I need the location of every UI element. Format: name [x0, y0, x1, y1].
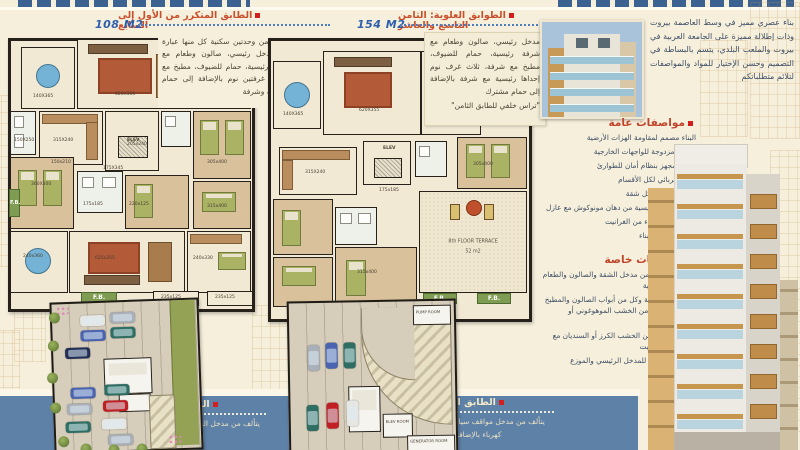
elevator-shaft: [374, 158, 402, 178]
dim-label: 315X240: [53, 137, 73, 142]
terrace: 8th FLOOR TERRACE 52 m2: [419, 191, 527, 293]
parked-car: [101, 418, 126, 430]
tower-side-balcony: [750, 344, 777, 359]
dim-label: 240x330: [193, 255, 213, 260]
parked-car: [346, 400, 358, 426]
dim-label: 175x185: [83, 201, 103, 206]
bath-fixture: [358, 213, 371, 224]
bullet-icon: [509, 13, 514, 18]
dim-label: 220x125: [129, 201, 149, 206]
tree: [108, 444, 119, 450]
dim-label: 620X355: [115, 91, 135, 96]
tower-render: [648, 130, 798, 450]
terrace-area-label: 52 m2: [431, 249, 516, 255]
parked-car: [80, 330, 105, 342]
bathroom: [10, 111, 36, 155]
tower-side-face: [746, 174, 780, 450]
parked-car: [70, 387, 95, 399]
salon-room: [323, 51, 421, 135]
bath-fixture: [14, 116, 24, 128]
parking-plan-basement: PUMP ROOM ELEV ROOM GENERATOR ROOM: [287, 299, 459, 450]
bath-fixture: [102, 177, 116, 188]
parked-car: [307, 345, 319, 371]
dim-label: 305x400: [473, 161, 493, 166]
round-table: [466, 200, 482, 216]
sofa: [84, 275, 140, 285]
bed: [491, 144, 510, 178]
dim-label: 175X345: [103, 165, 123, 170]
tree: [58, 436, 69, 447]
balcony-room: [21, 47, 75, 109]
dim-label: 305x400: [207, 159, 227, 164]
dining-table: [148, 242, 172, 282]
tower-balcony-glass: [677, 389, 743, 399]
tower-balcony-glass: [677, 269, 743, 279]
dim-label: 360X300: [31, 181, 51, 186]
bathroom: [335, 207, 377, 245]
tower-balcony-glass: [677, 209, 743, 219]
bed: [202, 192, 236, 212]
dim-label: 140X365: [33, 93, 53, 98]
photo-balcony: [550, 88, 634, 96]
dotted-rule: [138, 24, 330, 26]
bathroom: [415, 141, 447, 177]
parked-car: [67, 403, 92, 415]
upper-floors-note: "تراس خلفي للطابق الثامن": [430, 100, 540, 112]
rug: [344, 72, 392, 108]
parked-car: [104, 384, 129, 396]
sofa: [334, 57, 392, 67]
dim-label: 235x125: [215, 294, 235, 299]
bedroom: [335, 247, 417, 307]
balcony-room: [273, 61, 321, 129]
tower-right-wing: [780, 280, 798, 450]
elev-label: ELEV: [127, 137, 140, 142]
tower-balcony-glass: [677, 329, 743, 339]
building-photo: [540, 20, 644, 119]
bath-fixture: [82, 177, 94, 188]
dim-label: 150X250: [14, 137, 34, 142]
tree: [80, 443, 91, 450]
brand-band-left: [18, 0, 250, 7]
bath-fixture: [419, 146, 430, 157]
round-table: [284, 82, 310, 108]
photo-window: [576, 38, 588, 48]
stairs: [109, 362, 147, 375]
bathroom: [77, 171, 123, 213]
parked-car: [110, 327, 135, 339]
photo-balcony: [550, 56, 634, 64]
bed: [282, 210, 301, 246]
dim-label: 315x400: [207, 203, 227, 208]
parked-car: [103, 400, 128, 412]
general-specs-title: مواصفات عامة: [608, 117, 685, 129]
upper-floors-description-panel: مدخل رئيسي، صالون وطعام مع شرفة رئيسية، …: [424, 32, 546, 126]
bullet-icon: [499, 400, 504, 405]
tower-front-face: [674, 164, 747, 450]
bedroom: [193, 111, 251, 179]
tower-balcony-glass: [677, 179, 743, 189]
elev-room: ELEV ROOM: [383, 413, 413, 438]
terrace-chair: [450, 204, 460, 220]
tower-balcony-glass: [677, 419, 743, 429]
general-specs-heading-row: مواصفات عامة: [540, 117, 696, 129]
tree: [49, 312, 60, 323]
tower-base: [674, 432, 780, 450]
parked-car: [325, 343, 337, 369]
round-table: [36, 64, 60, 88]
bullet-icon: [688, 121, 693, 126]
dotted-rule: [400, 24, 538, 26]
bed: [218, 252, 246, 270]
tree: [48, 340, 59, 351]
kitchen-counter: [282, 160, 293, 190]
parking-plan-ground: [49, 297, 203, 450]
tower-balcony-glass: [677, 359, 743, 369]
parked-car: [343, 342, 355, 368]
elev-room-label: ELEV ROOM: [386, 419, 409, 424]
intro-paragraph: بناء عصري مميز في وسط العاصمة بيروت وذات…: [650, 16, 794, 84]
parked-car: [80, 315, 105, 327]
parked-car: [326, 403, 338, 429]
tower-side-balcony: [750, 374, 777, 389]
tower-balcony-glass: [677, 239, 743, 249]
tree: [50, 402, 61, 413]
photo-balcony: [550, 104, 634, 112]
dim-label: 315x400: [357, 269, 377, 274]
round-table: [25, 248, 51, 274]
dim-label: 315X240: [305, 169, 325, 174]
upper-floors-title-row: الطوابق العلوية: الثامن التاسع والعاشر: [398, 11, 540, 30]
photo-balcony: [550, 72, 634, 80]
bed: [43, 170, 62, 206]
tower-left-wing: [648, 188, 674, 450]
bed: [282, 266, 316, 286]
upper-floors-area: 154 M2: [357, 18, 405, 31]
brochure-page: الطابق المتكرر من الأول إلى السابع 108 M…: [0, 0, 800, 450]
repeated-floor-area: 108 M2: [95, 18, 143, 31]
tower-side-balcony: [750, 404, 777, 419]
dim-label: 620X355: [359, 107, 379, 112]
tree: [136, 443, 147, 450]
rug: [98, 58, 152, 94]
dim-label: 625x355: [95, 255, 115, 260]
upper-floors-title: الطوابق العلوية: الثامن التاسع والعاشر: [398, 10, 506, 31]
upper-floors-description: مدخل رئيسي، صالون وطعام مع شرفة رئيسية، …: [430, 36, 540, 98]
dim-label: 240x360: [23, 253, 43, 258]
tower-side-balcony: [750, 224, 777, 239]
kitchen-counter: [282, 150, 350, 160]
generator-room-label: GENERATOR ROOM: [410, 439, 447, 444]
flower-box: F.B.: [9, 189, 20, 217]
parked-car: [306, 405, 318, 431]
parked-car: [66, 421, 91, 433]
bathroom: [161, 111, 191, 147]
parked-car: [110, 312, 135, 324]
tower-side-balcony: [750, 284, 777, 299]
tower-side-balcony: [750, 254, 777, 269]
pump-room: PUMP ROOM: [413, 305, 451, 326]
parked-car: [65, 347, 90, 359]
tower-side-balcony: [750, 314, 777, 329]
tower-side-balcony: [750, 194, 777, 209]
bed: [225, 120, 244, 155]
dim-label: 140X365: [283, 111, 303, 116]
bullet-icon: [255, 13, 260, 18]
bed: [18, 170, 37, 206]
tree: [47, 372, 58, 383]
generator-room: GENERATOR ROOM: [407, 435, 455, 450]
bedroom: [273, 199, 333, 255]
tower-balcony-glass: [677, 299, 743, 309]
bedroom: [273, 257, 333, 307]
bath-fixture: [165, 116, 176, 127]
sofa: [88, 44, 148, 54]
dim-label: 150x210: [51, 159, 71, 164]
salon-room: [69, 231, 185, 293]
kitchen-room: [187, 231, 251, 293]
balcony-room: [10, 231, 68, 293]
pump-room-label: PUMP ROOM: [416, 310, 440, 315]
kitchen-counter: [86, 122, 98, 160]
bath-fixture: [340, 213, 352, 224]
dim-label: 175x185: [379, 187, 399, 192]
bed: [346, 260, 366, 296]
terrace-label: 8th FLOOR TERRACE: [431, 239, 516, 245]
flower-box: F.B.: [477, 293, 511, 304]
bed: [200, 120, 219, 155]
photo-window: [598, 38, 610, 48]
bullet-icon: [213, 402, 218, 407]
terrace-chair: [484, 204, 494, 220]
elev-label: ELEV: [383, 145, 396, 150]
kitchen-counter: [190, 234, 242, 244]
